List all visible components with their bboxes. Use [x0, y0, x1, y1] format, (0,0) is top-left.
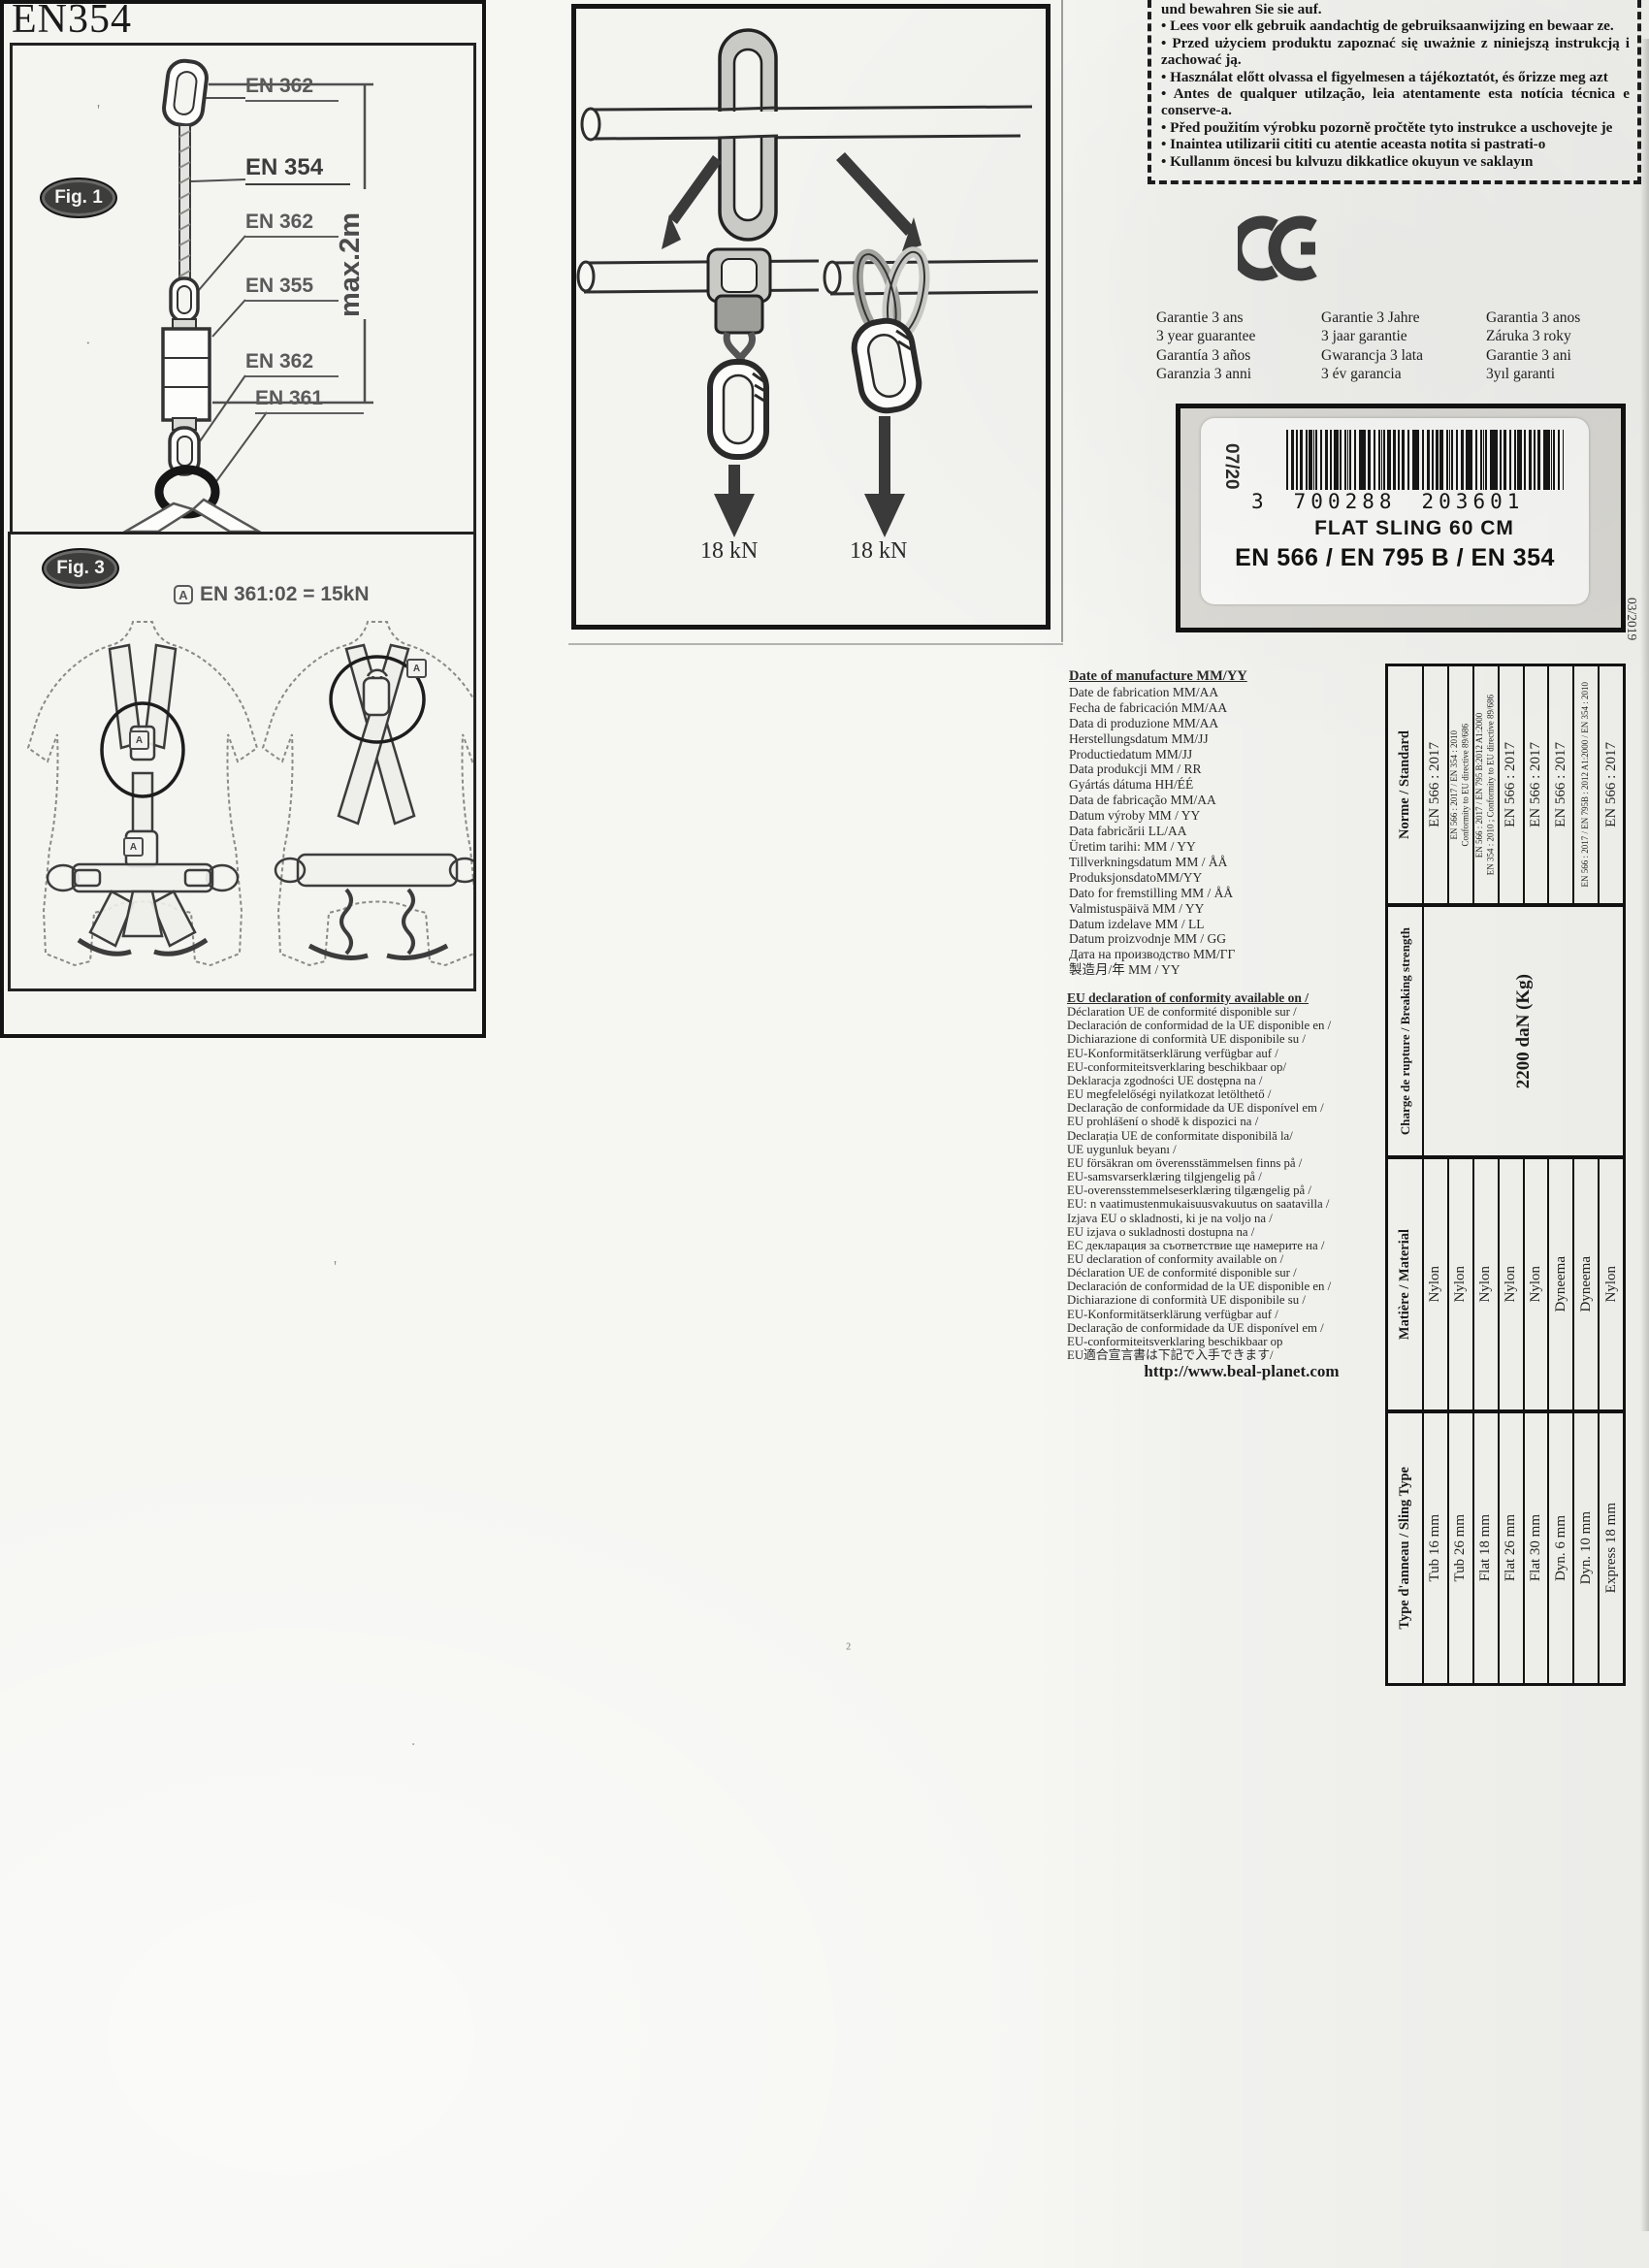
breaking-strength-band: Charge de rupture / Breaking strength 22…	[1385, 904, 1626, 1158]
eu-declaration-line: ЕС декларация за съответствие ще намерит…	[1067, 1239, 1379, 1252]
manufacture-date-line: Valmistuspäivä MM / YY	[1069, 901, 1360, 917]
en354-section-box: EN354	[0, 0, 486, 1038]
eu-declaration-line: EU prohlášení o shodě k dispozici na /	[1067, 1115, 1379, 1128]
eu-declaration-line: EU-samsvarserklæring tilgjengelig på /	[1067, 1170, 1379, 1183]
material-cell: Dyneema	[1547, 1159, 1572, 1409]
girth-hitch-assembly-icon	[578, 249, 819, 457]
manufacture-date-line: Date de fabrication MM/AA	[1069, 685, 1360, 700]
manufacture-date-line: Дата на производство MM/ГГ	[1069, 947, 1360, 962]
notice-edge-line-vertical	[1061, 0, 1063, 642]
manufacture-date-line: Herstellungsdatum MM/JJ	[1069, 731, 1360, 747]
eu-declaration-line: EU-Konformitätserklärung verfügbar auf /	[1067, 1308, 1379, 1321]
fig3-note-text: EN 361:02 = 15kN	[200, 583, 370, 606]
part-standard-label: EN 355	[245, 275, 339, 302]
standard-cell: EN 566 : 2017 / EN 795 B:2012 A1:2000 EN…	[1472, 666, 1498, 903]
harness-back-view	[263, 622, 473, 965]
material-cell: Dyneema	[1572, 1159, 1598, 1409]
front-marker-a: A	[129, 730, 149, 750]
manufacture-date-line: Üretim tarihi: MM / YY	[1069, 839, 1360, 855]
manufacture-date-line: Tillverkningsdatum MM / ÅÅ	[1069, 855, 1360, 870]
manufacture-date-lines: Date de fabrication MM/AAFecha de fabric…	[1069, 685, 1360, 978]
part-standard-label: EN 354	[245, 154, 350, 185]
manufacturer-url: http://www.beal-planet.com	[1106, 1362, 1377, 1381]
right-load-arrow-icon	[864, 416, 905, 537]
guarantee-col-3: Garantia 3 anos Záruka 3 roky Garantie 3…	[1486, 308, 1649, 384]
warning-line: • Przed użyciem produktu zapoznać się uw…	[1161, 35, 1630, 69]
scan-artifact: ²	[846, 1639, 851, 1659]
eu-declaration-line: EU適合宣言書は下記で入手できます/	[1067, 1348, 1379, 1362]
material-cell: Nylon	[1472, 1159, 1498, 1409]
scan-artifact: .	[411, 1731, 415, 1750]
fig3-box: Fig. 3 A EN 361:02 = 15kN A A A	[8, 532, 476, 991]
ce-mark-icon	[1238, 206, 1317, 291]
sling-loop-icon	[718, 30, 778, 240]
fig1-part-labels: EN 362EN 354EN 362EN 355EN 362EN 361	[13, 46, 473, 533]
eu-declaration-line: EU-conformiteitsverklaring beschikbaar o…	[1067, 1060, 1379, 1074]
manufacture-date-line: Data produkcji MM / RR	[1069, 761, 1360, 777]
max-length-label: max.2m	[335, 191, 367, 317]
manufacture-date-line: Fecha de fabricación MM/AA	[1069, 700, 1360, 716]
material-header: Matière / Material	[1397, 1229, 1413, 1340]
eu-declaration-line: EU declaration of conformity available o…	[1067, 1252, 1379, 1266]
eu-declaration-heading: EU declaration of conformity available o…	[1067, 991, 1379, 1005]
manufacture-date-line: Datum izdelave MM / LL	[1069, 917, 1360, 932]
fig3-note: A EN 361:02 = 15kN	[174, 583, 370, 606]
eu-declaration-line: Declarația UE de conformitate disponibil…	[1067, 1129, 1379, 1143]
en354-section-title: EN354	[12, 0, 132, 43]
barcode-icon	[1286, 430, 1564, 490]
choice-arrows-icon	[662, 152, 921, 251]
manufacture-date-line: Datum proizvodnje MM / GG	[1069, 931, 1360, 947]
guarantee-col-2: Garantie 3 Jahre 3 jaar garantie Gwaranc…	[1321, 308, 1486, 384]
eu-declaration-line: Declaração de conformidade da UE disponí…	[1067, 1321, 1379, 1335]
standard-cell: EN 566 : 2017 / EN 795B : 2012 A1:2000 /…	[1572, 666, 1598, 903]
anchor-diagram-box: 18 kN 18 kN	[571, 4, 1051, 630]
manufacture-date-list: Date of manufacture MM/YY Date de fabric…	[1069, 669, 1360, 978]
sling-type-cell: Flat 18 mm	[1472, 1413, 1498, 1683]
product-label: 07/20 3 700288 203601 FLAT SLING 60 CM E…	[1201, 418, 1589, 604]
eu-declaration-line: Déclaration UE de conformité disponible …	[1067, 1005, 1379, 1019]
eu-declaration-line: Declaración de conformidad de la UE disp…	[1067, 1019, 1379, 1032]
multilingual-warning-box: und bewahren Sie sie auf.• Lees voor elk…	[1148, 0, 1641, 184]
sling-type-cell: Dyn. 6 mm	[1547, 1413, 1572, 1683]
warning-line: und bewahren Sie sie auf.	[1161, 1, 1630, 17]
eu-declaration-line: EU-conformiteitsverklaring beschikbaar o…	[1067, 1335, 1379, 1348]
sling-type-band: Type d'anneau / Sling Type Tub 16 mmTub …	[1385, 1410, 1626, 1686]
sling-anchor-diagram	[576, 9, 1046, 625]
material-cell: Nylon	[1422, 1159, 1447, 1409]
sling-type-cell: Express 18 mm	[1598, 1413, 1623, 1683]
fig1-box: Fig. 1 EN 362EN 354EN 362EN 355EN 362EN …	[10, 43, 476, 535]
sling-type-cell: Tub 16 mm	[1422, 1413, 1447, 1683]
eu-declaration-line: EU-overensstemmelseserklæring tilgængeli…	[1067, 1183, 1379, 1197]
product-name: FLAT SLING 60 CM	[1259, 517, 1569, 540]
scanned-instruction-sheet: 18 kN 18 kN und bewahren Sie sie auf.• L…	[0, 0, 1649, 2268]
eu-declaration-line: EU megfelelőségi nyilatkozat letölthető …	[1067, 1087, 1379, 1101]
material-band: Matière / Material NylonNylonNylonNylonN…	[1385, 1156, 1626, 1412]
part-standard-label: EN 361	[255, 387, 364, 414]
warning-line: • Před použitím výrobku pozorně pročtěte…	[1161, 119, 1630, 136]
eu-declaration-line: EU försäkran om överensstämmelsen finns …	[1067, 1156, 1379, 1170]
warning-line: • Antes de qualquer utilzação, leia aten…	[1161, 85, 1630, 119]
material-cell: Nylon	[1598, 1159, 1623, 1409]
eu-declaration-line: EU-Konformitätserklärung verfügbar auf /	[1067, 1047, 1379, 1060]
standards-band: Norme / Standard EN 566 : 2017EN 566 : 2…	[1385, 664, 1626, 906]
part-standard-label: EN 362	[245, 350, 339, 377]
manufacture-date-line: ProduksjonsdatoMM/YY	[1069, 870, 1360, 886]
front-lower-marker-a: A	[123, 837, 144, 857]
sling-type-cell: Dyn. 10 mm	[1572, 1413, 1598, 1683]
ean-prefix: 3	[1251, 490, 1269, 513]
standard-cell: EN 566 : 2017	[1498, 666, 1523, 903]
warning-line: • Inaintea utilizarii cititi cu atentie …	[1161, 136, 1630, 152]
eu-declaration-line: Déclaration UE de conformité disponible …	[1067, 1266, 1379, 1280]
manufacture-date-line: Productiedatum MM/JJ	[1069, 747, 1360, 762]
manufacture-date-line: 製造月/年 MM / YY	[1069, 962, 1360, 978]
sling-type-cell: Flat 30 mm	[1523, 1413, 1548, 1683]
eu-declaration-line: EU: n vaatimustenmukaisuusvakuutus on sa…	[1067, 1197, 1379, 1211]
material-cell: Nylon	[1498, 1159, 1523, 1409]
part-standard-label: EN 362	[245, 211, 339, 238]
breaking-strength-value: 2200 daN (Kg)	[1513, 974, 1535, 1088]
warning-line: • Lees voor elk gebruik aandachtig de ge…	[1161, 17, 1630, 34]
back-marker-a: A	[406, 659, 427, 678]
eu-declaration-line: EU izjava o sukladnosti dostupna na /	[1067, 1225, 1379, 1239]
scan-artifact: '	[334, 1257, 337, 1277]
standard-cell: EN 566 : 2017 / EN 354 : 2010 Conformity…	[1447, 666, 1472, 903]
material-cell: Nylon	[1523, 1159, 1548, 1409]
date-stamp: 07/20	[1220, 443, 1242, 511]
attachment-marker-icon: A	[174, 585, 193, 604]
warning-line: • Kullanım öncesi bu kılvuzu dikkatlice …	[1161, 153, 1630, 170]
right-force-label: 18 kN	[850, 538, 907, 565]
harness-front-view	[28, 622, 257, 965]
ean-group-1: 700288	[1294, 490, 1397, 513]
eu-declaration-line: UE uygunluk beyanı /	[1067, 1143, 1379, 1156]
manufacture-date-line: Data di produzione MM/AA	[1069, 716, 1360, 731]
barcode-digits: 3 700288 203601	[1251, 490, 1571, 513]
eu-declaration-line: Dichiarazione di conformità UE disponibi…	[1067, 1032, 1379, 1046]
sling-type-cell: Tub 26 mm	[1447, 1413, 1472, 1683]
sling-type-header: Type d'anneau / Sling Type	[1397, 1467, 1413, 1630]
eu-declaration-line: Deklaracja zgodności UE dostępna na /	[1067, 1074, 1379, 1087]
manufacture-date-line: Gyártás dátuma HH/ÉÉ	[1069, 777, 1360, 793]
eu-declaration-line: Declaração de conformidade da UE disponí…	[1067, 1101, 1379, 1115]
standard-cell: EN 566 : 2017	[1523, 666, 1548, 903]
guarantee-col-1: Garantie 3 ans 3 year guarantee Garantía…	[1156, 308, 1321, 384]
scan-artifact: ·	[85, 334, 91, 353]
fig3-caption: Fig. 3	[42, 548, 119, 589]
notice-edge-line-horizontal	[568, 643, 1063, 645]
standards-header: Norme / Standard	[1397, 730, 1413, 839]
manufacture-date-heading: Date of manufacture MM/YY	[1069, 669, 1360, 685]
ean-group-2: 203601	[1422, 490, 1525, 513]
left-force-label: 18 kN	[700, 538, 758, 565]
sling-type-cell: Flat 26 mm	[1498, 1413, 1523, 1683]
material-cell: Nylon	[1447, 1159, 1472, 1409]
eu-declaration-line: Izjava EU o skladnosti, ki je na voljo n…	[1067, 1212, 1379, 1225]
standard-cell: EN 566 : 2017	[1547, 666, 1572, 903]
eu-declaration-lines: Déclaration UE de conformité disponible …	[1067, 1005, 1379, 1362]
basket-hitch-assembly-icon	[824, 248, 1038, 414]
standard-cell: EN 566 : 2017	[1598, 666, 1623, 903]
manufacture-date-line: Datum výroby MM / YY	[1069, 808, 1360, 824]
eu-declaration-list: EU declaration of conformity available o…	[1067, 991, 1379, 1362]
manufacture-date-line: Data de fabricação MM/AA	[1069, 793, 1360, 808]
left-load-arrow-icon	[714, 465, 755, 537]
eu-declaration-line: Declaración de conformidad de la UE disp…	[1067, 1280, 1379, 1293]
product-standards: EN 566 / EN 795 B / EN 354	[1201, 544, 1589, 572]
breaking-strength-header: Charge de rupture / Breaking strength	[1398, 927, 1413, 1135]
notice-print-date: 03/2019	[1624, 598, 1639, 690]
eu-declaration-line: Dichiarazione di conformità UE disponibi…	[1067, 1293, 1379, 1307]
warning-line: • Használat előtt olvassa el figyelmesen…	[1161, 69, 1630, 85]
manufacture-date-line: Data fabricării LL/AA	[1069, 824, 1360, 839]
standard-cell: EN 566 : 2017	[1422, 666, 1447, 903]
product-label-box: 07/20 3 700288 203601 FLAT SLING 60 CM E…	[1176, 404, 1626, 632]
manufacture-date-line: Dato for fremstilling MM / ÅÅ	[1069, 886, 1360, 901]
spec-table: Norme / Standard EN 566 : 2017EN 566 : 2…	[1385, 664, 1626, 1686]
scan-artifact: '	[97, 101, 100, 120]
part-standard-label: EN 362	[245, 75, 339, 102]
